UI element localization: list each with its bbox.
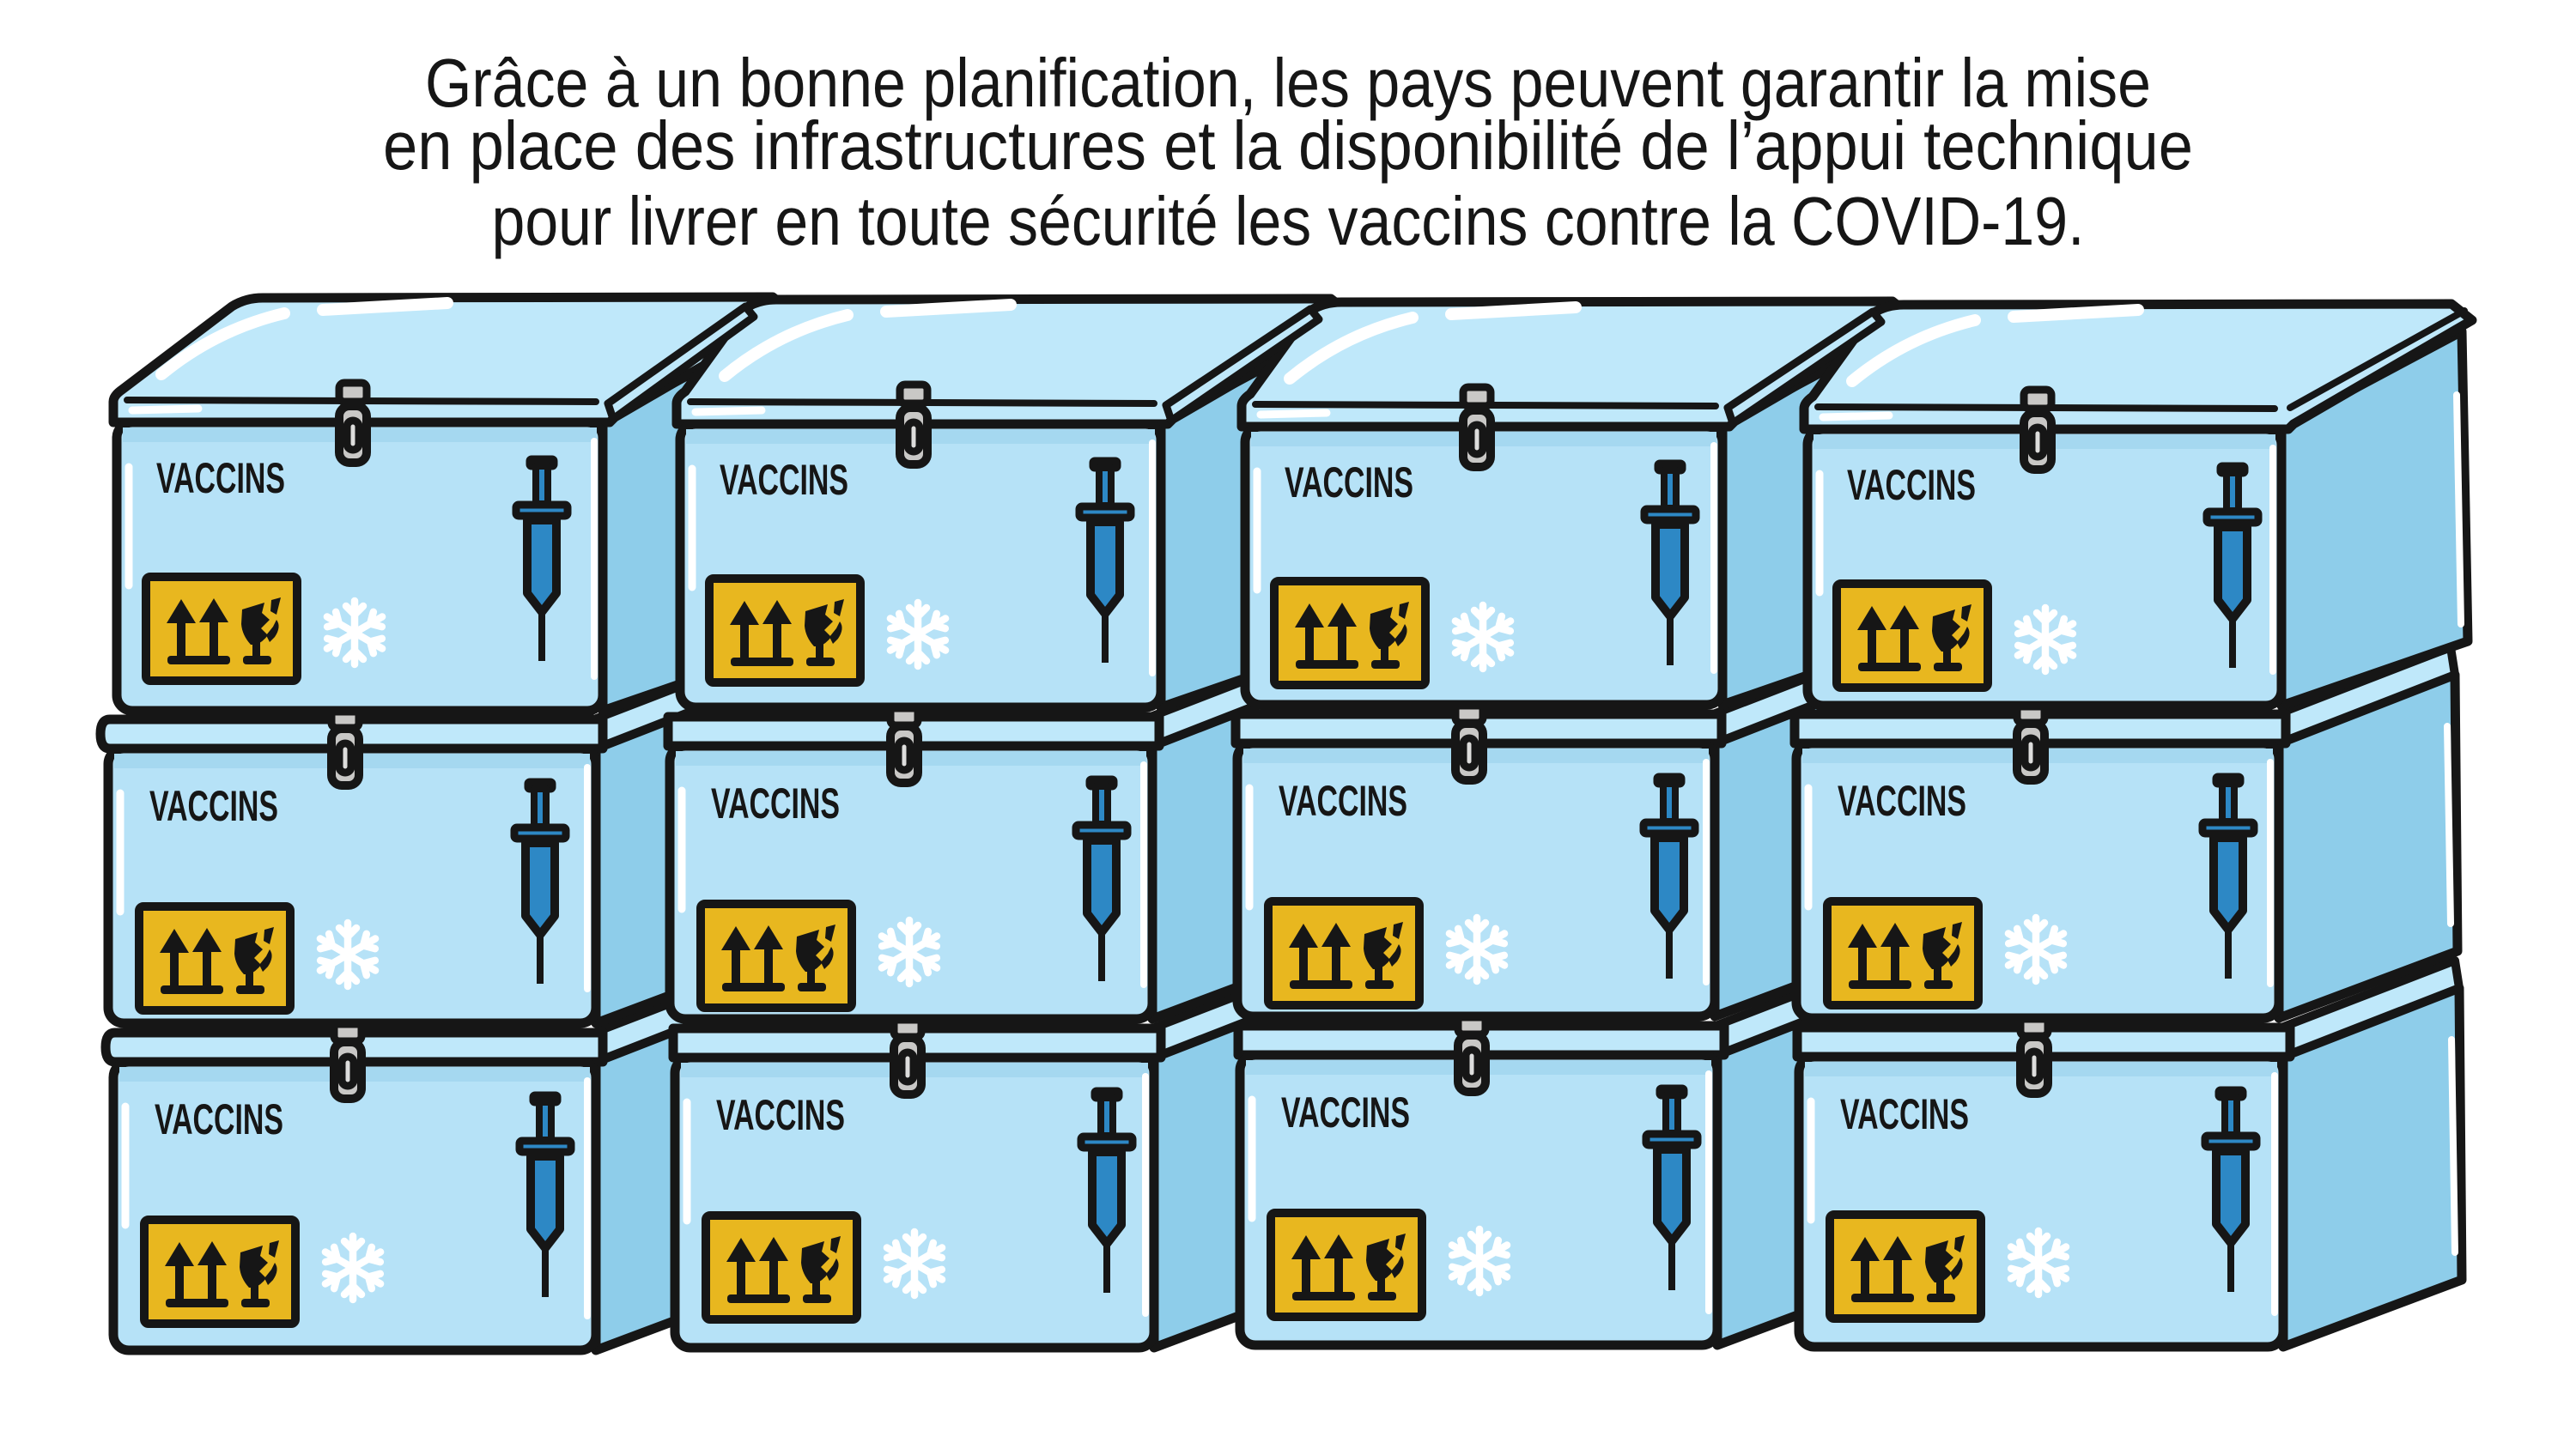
svg-text:pour livrer en toute sécurité: pour livrer en toute sécurité les vaccin… — [492, 183, 2085, 259]
svg-text:en place des infrastructures e: en place des infrastructures et la dispo… — [383, 107, 2193, 184]
svg-text:VACCINS: VACCINS — [149, 782, 278, 830]
svg-text:VACCINS: VACCINS — [1838, 777, 1966, 825]
svg-text:VACCINS: VACCINS — [156, 454, 285, 502]
svg-text:VACCINS: VACCINS — [716, 1091, 845, 1139]
svg-text:VACCINS: VACCINS — [1281, 1088, 1410, 1137]
svg-text:VACCINS: VACCINS — [1840, 1090, 1969, 1138]
svg-text:VACCINS: VACCINS — [1847, 461, 1976, 509]
svg-text:VACCINS: VACCINS — [1279, 777, 1407, 825]
svg-text:VACCINS: VACCINS — [1285, 458, 1413, 506]
svg-text:VACCINS: VACCINS — [155, 1095, 283, 1143]
svg-text:VACCINS: VACCINS — [720, 456, 848, 504]
svg-text:VACCINS: VACCINS — [711, 779, 840, 828]
